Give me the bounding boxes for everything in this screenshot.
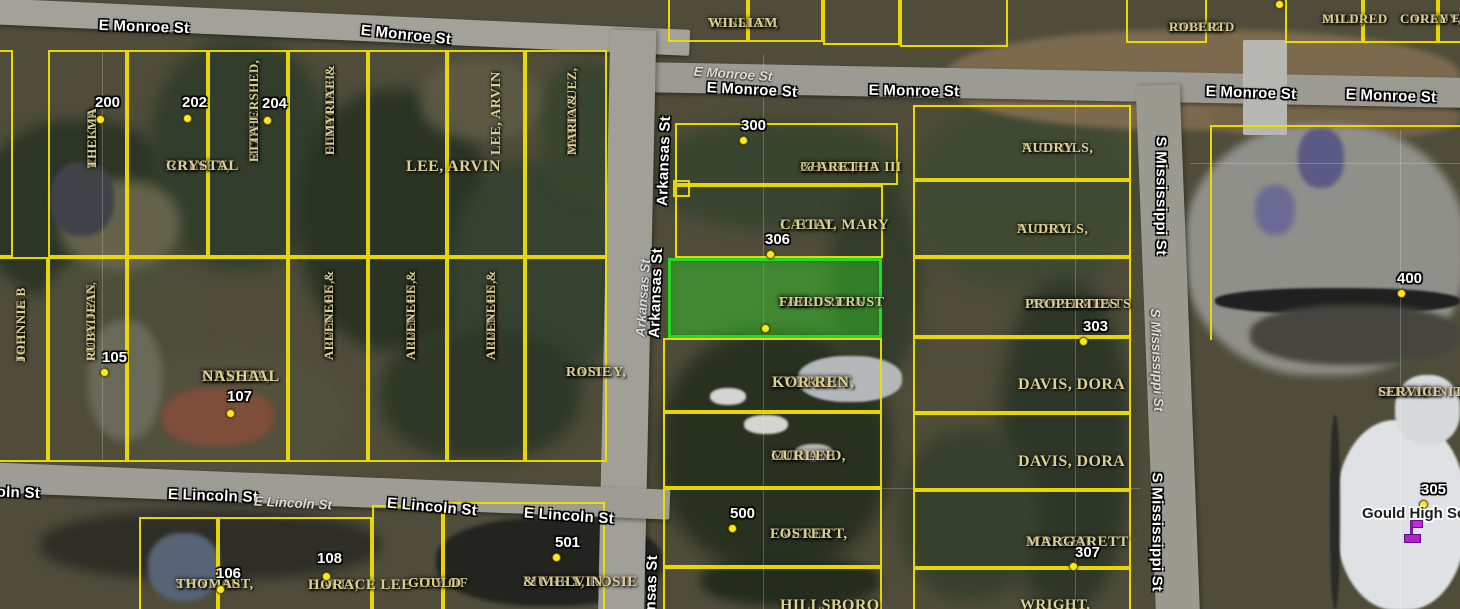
parcel-label-line: ELMYRIA [323,89,337,155]
parcel-label-line: PROPERTIES [1025,297,1118,312]
parcel-label-line: & MELVIN [523,574,603,591]
parcel-number-303: 303 [1083,318,1108,335]
parcel-label-line: ALLENE [404,304,418,360]
parcel-label-line: AUDRY [1017,222,1069,237]
parcel-number-204: 204 [262,95,287,112]
parcel-label-line: FOSTER [770,526,832,543]
parcel-label-line: AUDRY [1022,141,1074,156]
parcel-number-305: 305 [1421,481,1446,498]
parcel-number-306: 306 [765,231,790,248]
gis-parcel-map[interactable]: Gould High School NG,OLYNLLY),LLIE,RUCKE… [0,0,1460,609]
parcel-centroid-dot[interactable] [552,553,561,562]
parcel-number-307: 307 [1075,544,1100,561]
parcel-rainey-rosie[interactable] [525,257,607,462]
street-label-e-monroe-st: E Monroe St [98,17,189,37]
street-label-e-monroe-st: E Monroe St [868,82,959,101]
parcel-label-line: CURLEE [771,448,836,465]
parcel-rainey-crystal-nasha[interactable] [127,257,288,462]
parcel-number-108: 108 [317,550,342,567]
parcel-number-105: 105 [102,349,127,366]
parcel-centroid-dot[interactable] [766,250,775,259]
parcel-centroid-dot[interactable] [761,324,770,333]
parcel-number-500: 500 [730,505,755,522]
parcel-nichols-audry-2[interactable] [913,180,1131,257]
parcel-centroid-dot[interactable] [1079,337,1088,346]
street-label-e-monroe-st: E Monroe St [1345,86,1436,106]
parcel-centroid-dot[interactable] [263,116,272,125]
parcel-label-line: MILDRED [1322,12,1388,26]
parcel-centroid-dot[interactable] [1069,562,1078,571]
parcel-label-line: LEE, ARVIN [489,71,504,155]
parcel-number-501: 501 [555,534,580,551]
street-label-e-lincoln-st: E Lincoln St [168,486,259,506]
flag-base [1404,534,1421,543]
parcel-label-line: FIELDS TRUST [779,295,884,310]
parcel-number-202: 202 [182,94,207,111]
parcel-centroid-dot[interactable] [226,409,235,418]
parcel-centroid-dot[interactable] [216,585,225,594]
parcel-label-line: HILLSBORO [780,597,880,609]
parcel-davis-dora-1[interactable] [913,337,1131,413]
parcel-label-line: COREY [1400,12,1449,26]
school-flag-icon[interactable] [1402,520,1422,544]
parcel-black-churchie[interactable] [675,123,898,185]
parcel-lee-arvin-2[interactable] [447,50,525,257]
parcel-label-line: ALLENE [322,304,336,360]
street-label-s-mississippi-st: S Mississippi St [1149,473,1166,592]
parcel-label-line: DAVIS, DORA [1018,453,1125,471]
parcel-top-strip-c[interactable] [823,0,900,45]
satellite-texture [1330,415,1340,609]
parcel-label-line: MARIA [565,108,579,156]
parcel-label-line: ETTA J. [247,112,261,162]
parcel-swygart-thomas[interactable] [139,517,218,609]
parcel-davis-horace-lee[interactable] [218,517,372,609]
parcel-label-line: ROBERT [1169,20,1226,34]
parcel-label-line: DAVIS, DORA [1018,376,1125,394]
parcel-label-line: WILLIAM [708,16,778,31]
street-label-arkansas-st: Arkansas St [654,116,674,207]
parcel-number-300: 300 [741,117,766,134]
parcel-centroid-dot[interactable] [728,524,737,533]
parcel-centroid-dot[interactable] [96,115,105,124]
parcel-label-line: RUBY JEAN [84,284,98,361]
parcel-label-line: ALLENE [484,304,498,360]
parcel-edge-fragment[interactable] [0,50,13,257]
street-label-s-mississippi-st: S Mississippi St [1153,137,1170,256]
parcel-number-106: 106 [216,565,241,582]
parcel-label-line: NASHA [202,368,260,386]
street-label-e-lincoln-st: E Lincoln St [0,482,40,502]
parcel-label-line: ROSIE [566,365,612,380]
street-label-arkansas-st: Arkansas St [641,555,661,609]
street-label-e-monroe-st: E Monroe St [1205,83,1296,103]
parcel-number-200: 200 [95,94,120,111]
parcel-small-inner-box[interactable] [673,180,690,197]
parcel-label-line: JOHNNIE B [14,287,28,362]
parcel-top-strip-d[interactable] [900,0,1008,47]
flag-cloth [1412,520,1423,528]
parcel-parcel-400[interactable] [1210,125,1460,340]
parcel-centroid-dot[interactable] [1275,0,1284,9]
parcel-label-line: CRYSTAL [166,158,239,175]
parcel-rainey-crystal[interactable] [127,50,208,257]
parcel-label-line: WRIGHT, [1020,597,1090,609]
parcel-centroid-dot[interactable] [100,368,109,377]
parcel-centroid-dot[interactable] [183,114,192,123]
parcel-centroid-dot[interactable] [1397,289,1406,298]
parcel-label-line: SERVICE [1378,385,1443,400]
parcel-number-107: 107 [227,388,252,405]
parcel-label-line: LEE, ARVIN [406,158,501,176]
parcel-label-line: E [1452,12,1460,25]
parcel-lee-arvin-1[interactable] [368,50,447,257]
parcel-number-400: 400 [1397,270,1422,287]
parcel-davis-dora-2[interactable] [913,413,1131,490]
parcel-centroid-dot[interactable] [322,572,331,581]
parcel-centroid-dot[interactable] [739,136,748,145]
parcel-label-line: KOR'REN [772,374,849,392]
parcel-label-line: GOULD [408,576,461,591]
parcel-label-line: % ARETHA [800,160,880,175]
